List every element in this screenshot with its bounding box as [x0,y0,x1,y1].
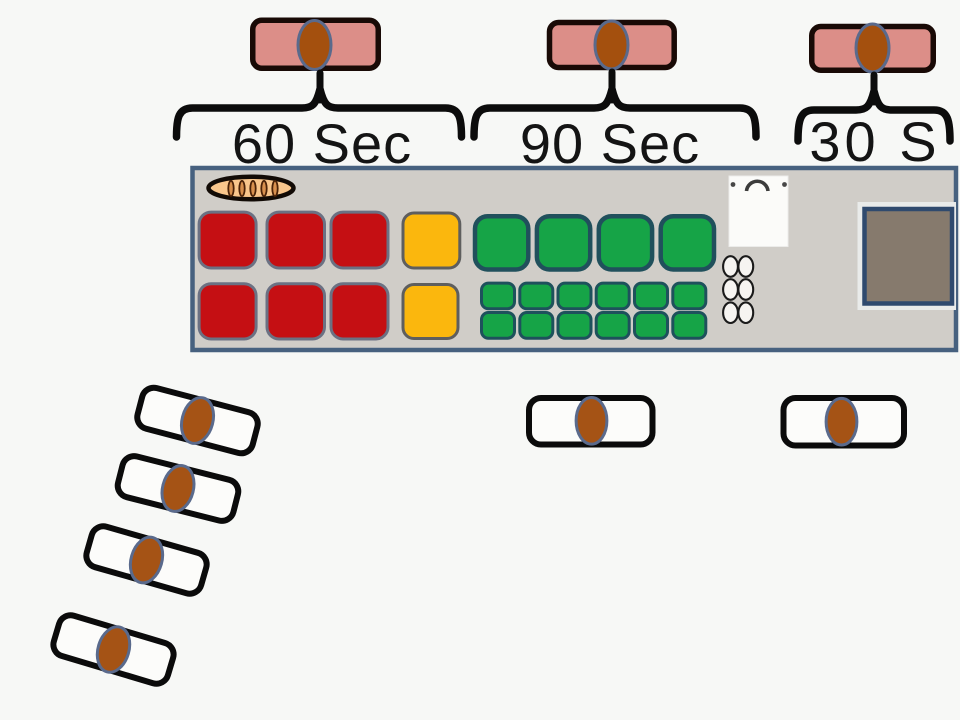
svg-text:30 S: 30 S [809,110,940,173]
svg-text:90 Sec: 90 Sec [520,112,700,175]
svg-text:60 Sec: 60 Sec [232,112,412,175]
